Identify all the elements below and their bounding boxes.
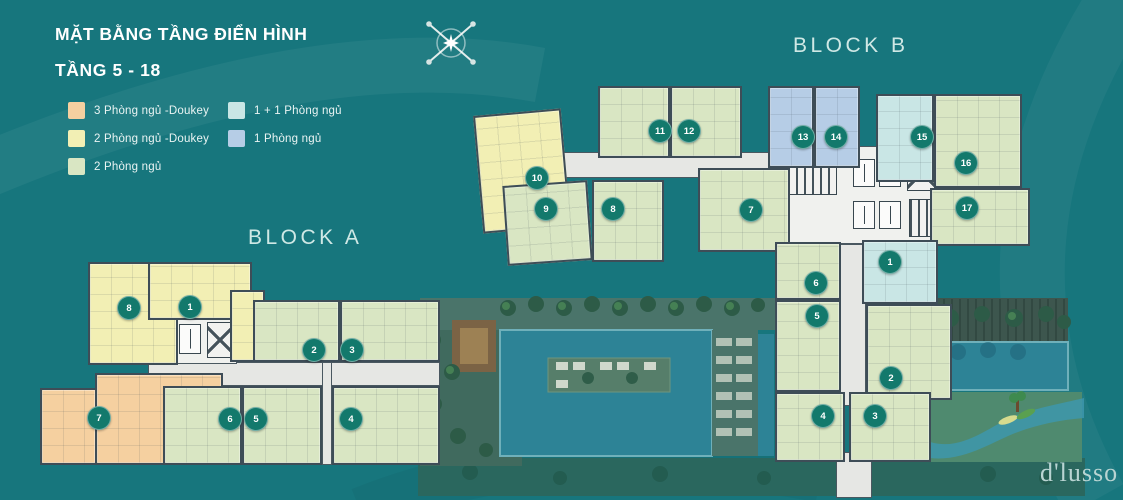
unit-badge-B13: 13 xyxy=(791,125,815,149)
legend-swatch xyxy=(68,158,85,175)
unit-badge-B16: 16 xyxy=(954,151,978,175)
main-pool xyxy=(500,330,712,456)
legend-label: 3 Phòng ngủ -Doukey xyxy=(94,105,209,117)
compass-rose-icon xyxy=(420,10,482,74)
unit-B17-shape xyxy=(930,188,1030,246)
unit-badge-A4: 4 xyxy=(339,407,363,431)
legend-column-1: 3 Phòng ngủ -Doukey2 Phòng ngủ -Doukey2 … xyxy=(68,102,209,186)
lap-pool-lane xyxy=(758,334,774,456)
unit-badge-B17: 17 xyxy=(955,196,979,220)
unit-B1-shape xyxy=(862,240,938,304)
page-header: MẶT BẰNG TẦNG ĐIỂN HÌNH TẦNG 5 - 18 xyxy=(55,24,307,81)
dlusso-logo: d'lusso xyxy=(1040,458,1118,488)
legend-label: 2 Phòng ngủ -Doukey xyxy=(94,133,209,145)
unit-B8-shape xyxy=(592,180,664,262)
page-title: MẶT BẰNG TẦNG ĐIỂN HÌNH xyxy=(55,24,307,45)
legend-item: 1 + 1 Phòng ngủ xyxy=(228,102,342,119)
unit-A7-shape xyxy=(40,388,97,465)
unit-badge-B14: 14 xyxy=(824,125,848,149)
block-a-label: BLOCK A xyxy=(248,226,362,250)
corridor-block-a-stub xyxy=(322,362,332,465)
legend-swatch xyxy=(228,102,245,119)
legend-item: 2 Phòng ngủ xyxy=(68,158,209,175)
unit-badge-A6: 6 xyxy=(218,407,242,431)
legend-swatch xyxy=(228,130,245,147)
unit-B9-shape xyxy=(502,180,592,266)
unit-B16-shape xyxy=(934,94,1022,188)
unit-B4-shape xyxy=(775,392,845,462)
unit-badge-B1: 1 xyxy=(878,250,902,274)
unit-badge-B8: 8 xyxy=(601,197,625,221)
unit-badge-B5: 5 xyxy=(805,304,829,328)
unit-badge-B7: 7 xyxy=(739,198,763,222)
unit-badge-A8: 8 xyxy=(117,296,141,320)
legend-label: 2 Phòng ngủ xyxy=(94,161,161,173)
legend-label: 1 + 1 Phòng ngủ xyxy=(254,105,342,117)
block-b-label: BLOCK B xyxy=(793,34,909,58)
elevator-icon xyxy=(853,201,875,229)
elevator-icon xyxy=(179,324,201,354)
floor-plan-page: 817236541098111213141516177651243 MẶT BẰ… xyxy=(0,0,1123,500)
unit-badge-B4: 4 xyxy=(811,404,835,428)
unit-badge-A1: 1 xyxy=(178,295,202,319)
elevator-icon xyxy=(879,201,901,229)
legend-item: 1 Phòng ngủ xyxy=(228,130,342,147)
unit-badge-A2: 2 xyxy=(302,338,326,362)
unit-A2-shape xyxy=(253,300,340,362)
legend-swatch xyxy=(68,130,85,147)
unit-badge-B10: 10 xyxy=(525,166,549,190)
unit-badge-B12: 12 xyxy=(677,119,701,143)
unit-badge-A5: 5 xyxy=(244,407,268,431)
legend-item: 2 Phòng ngủ -Doukey xyxy=(68,130,209,147)
legend-column-2: 1 + 1 Phòng ngủ1 Phòng ngủ xyxy=(228,102,342,158)
unit-badge-B11: 11 xyxy=(648,119,672,143)
legend-label: 1 Phòng ngủ xyxy=(254,133,321,145)
unit-badge-B6: 6 xyxy=(804,271,828,295)
unit-badge-A7: 7 xyxy=(87,406,111,430)
legend-item: 3 Phòng ngủ -Doukey xyxy=(68,102,209,119)
unit-badge-A3: 3 xyxy=(340,338,364,362)
unit-badge-B2: 2 xyxy=(879,366,903,390)
unit-badge-B15: 15 xyxy=(910,125,934,149)
unit-B2-shape xyxy=(866,304,952,400)
unit-badge-B9: 9 xyxy=(534,197,558,221)
unit-B3-shape xyxy=(849,392,931,462)
legend-swatch xyxy=(68,102,85,119)
unit-badge-B3: 3 xyxy=(863,404,887,428)
page-subtitle: TẦNG 5 - 18 xyxy=(55,60,307,81)
